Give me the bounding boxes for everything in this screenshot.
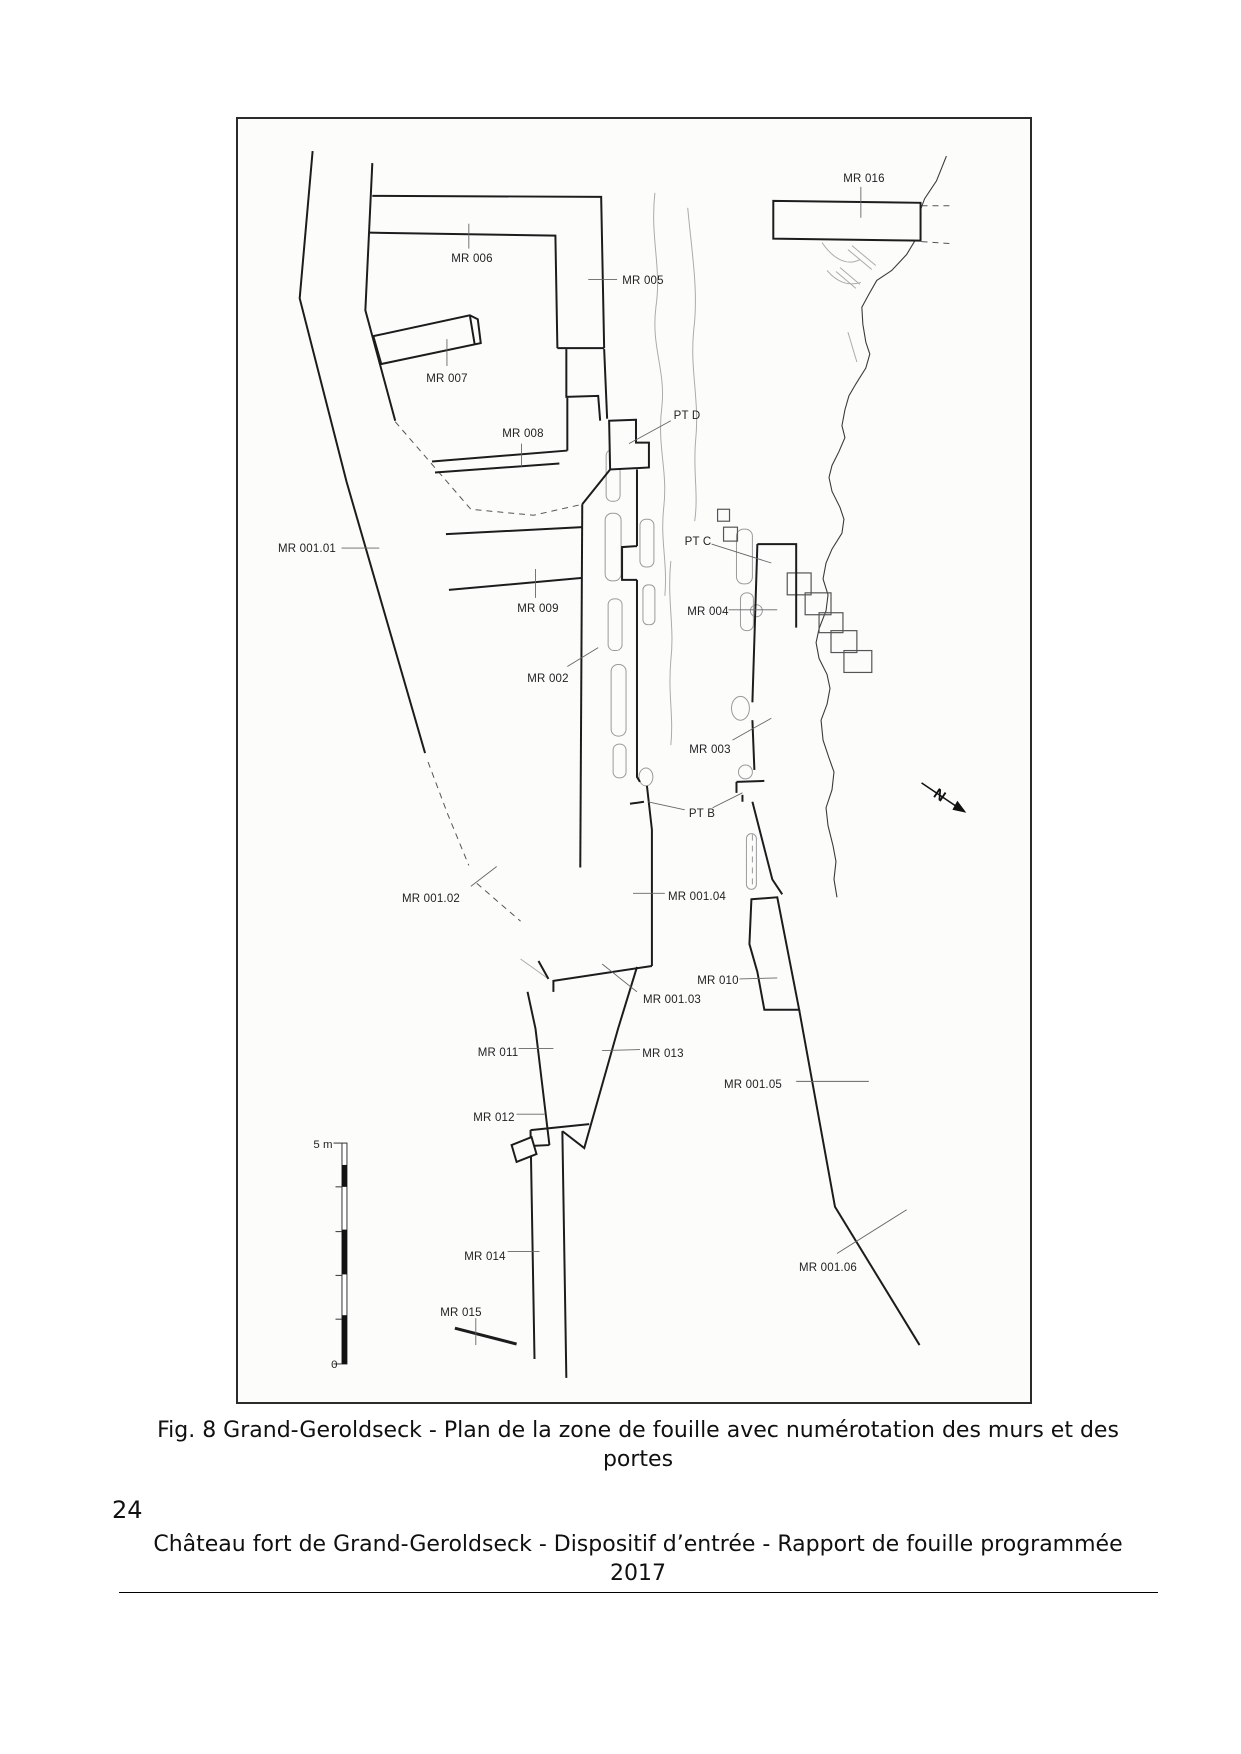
plan-label-mr00104: MR 001.04 xyxy=(668,891,726,903)
leader-mr013 xyxy=(602,1050,640,1051)
leader-ptb xyxy=(713,793,743,808)
plan-label-mr00101: MR 001.01 xyxy=(278,543,336,555)
leader-ptb xyxy=(648,802,685,810)
leader-mr00106 xyxy=(837,1210,907,1254)
plan-label-mr016: MR 016 xyxy=(843,173,884,185)
plan-label-mr00106: MR 001.06 xyxy=(799,1262,857,1274)
dashed-wall-lines xyxy=(395,206,950,921)
plan-walls xyxy=(300,151,921,1378)
plan-label-mr008: MR 008 xyxy=(502,428,543,440)
plan-label-mr00105: MR 001.05 xyxy=(724,1079,782,1091)
plan-label-mr004: MR 004 xyxy=(687,606,728,618)
plan-label-mr013: MR 013 xyxy=(642,1048,683,1060)
figure-caption: Fig. 8 Grand-Geroldseck - Plan de la zon… xyxy=(138,1416,1138,1474)
plan-label-ptd: PT D xyxy=(674,410,701,422)
plan-label-mr006: MR 006 xyxy=(451,253,492,265)
north-arrow-icon: N xyxy=(922,783,967,813)
footer-title: Château fort de Grand-Geroldseck - Dispo… xyxy=(153,1531,1123,1588)
report-page: 5 m 0 N MR 016MR 006MR 005MR 007MR 008PT… xyxy=(0,0,1241,1754)
leader-mr002 xyxy=(567,648,598,667)
scale-bar-top-label: 5 m xyxy=(313,1139,332,1151)
plan-label-mr010: MR 010 xyxy=(697,975,738,987)
plan-label-mr014: MR 014 xyxy=(464,1251,505,1263)
plan-label-mr007: MR 007 xyxy=(426,373,467,385)
plan-label-mr009: MR 009 xyxy=(517,603,558,615)
step-blocks xyxy=(718,509,872,672)
plan-label-mr005: MR 005 xyxy=(622,275,663,287)
north-arrow-letter: N xyxy=(930,785,948,805)
figure-plan-frame: 5 m 0 N MR 016MR 006MR 005MR 007MR 008PT… xyxy=(236,117,1032,1404)
leader-mr00102 xyxy=(471,866,497,886)
plan-label-mr00103: MR 001.03 xyxy=(643,994,701,1006)
excavation-plan-drawing: 5 m 0 N xyxy=(238,119,1030,1402)
page-number: 24 xyxy=(112,1496,143,1524)
plan-label-mr002: MR 002 xyxy=(527,673,568,685)
plan-label-mr015: MR 015 xyxy=(440,1307,481,1319)
plan-label-mr00102: MR 001.02 xyxy=(402,893,460,905)
scale-bar: 5 m 0 xyxy=(313,1139,347,1371)
plan-label-mr003: MR 003 xyxy=(689,744,730,756)
plan-label-ptb: PT B xyxy=(689,808,715,820)
plan-label-mr012: MR 012 xyxy=(473,1112,514,1124)
footer-rule xyxy=(119,1592,1158,1593)
leader-ptc xyxy=(712,544,772,563)
scale-bar-zero-label: 0 xyxy=(331,1359,337,1371)
terrain-contours-light xyxy=(521,193,876,979)
label-leader-lines xyxy=(341,187,906,1345)
plan-label-ptc: PT C xyxy=(685,536,712,548)
plan-label-mr011: MR 011 xyxy=(478,1047,519,1059)
stone-contours xyxy=(605,450,762,890)
